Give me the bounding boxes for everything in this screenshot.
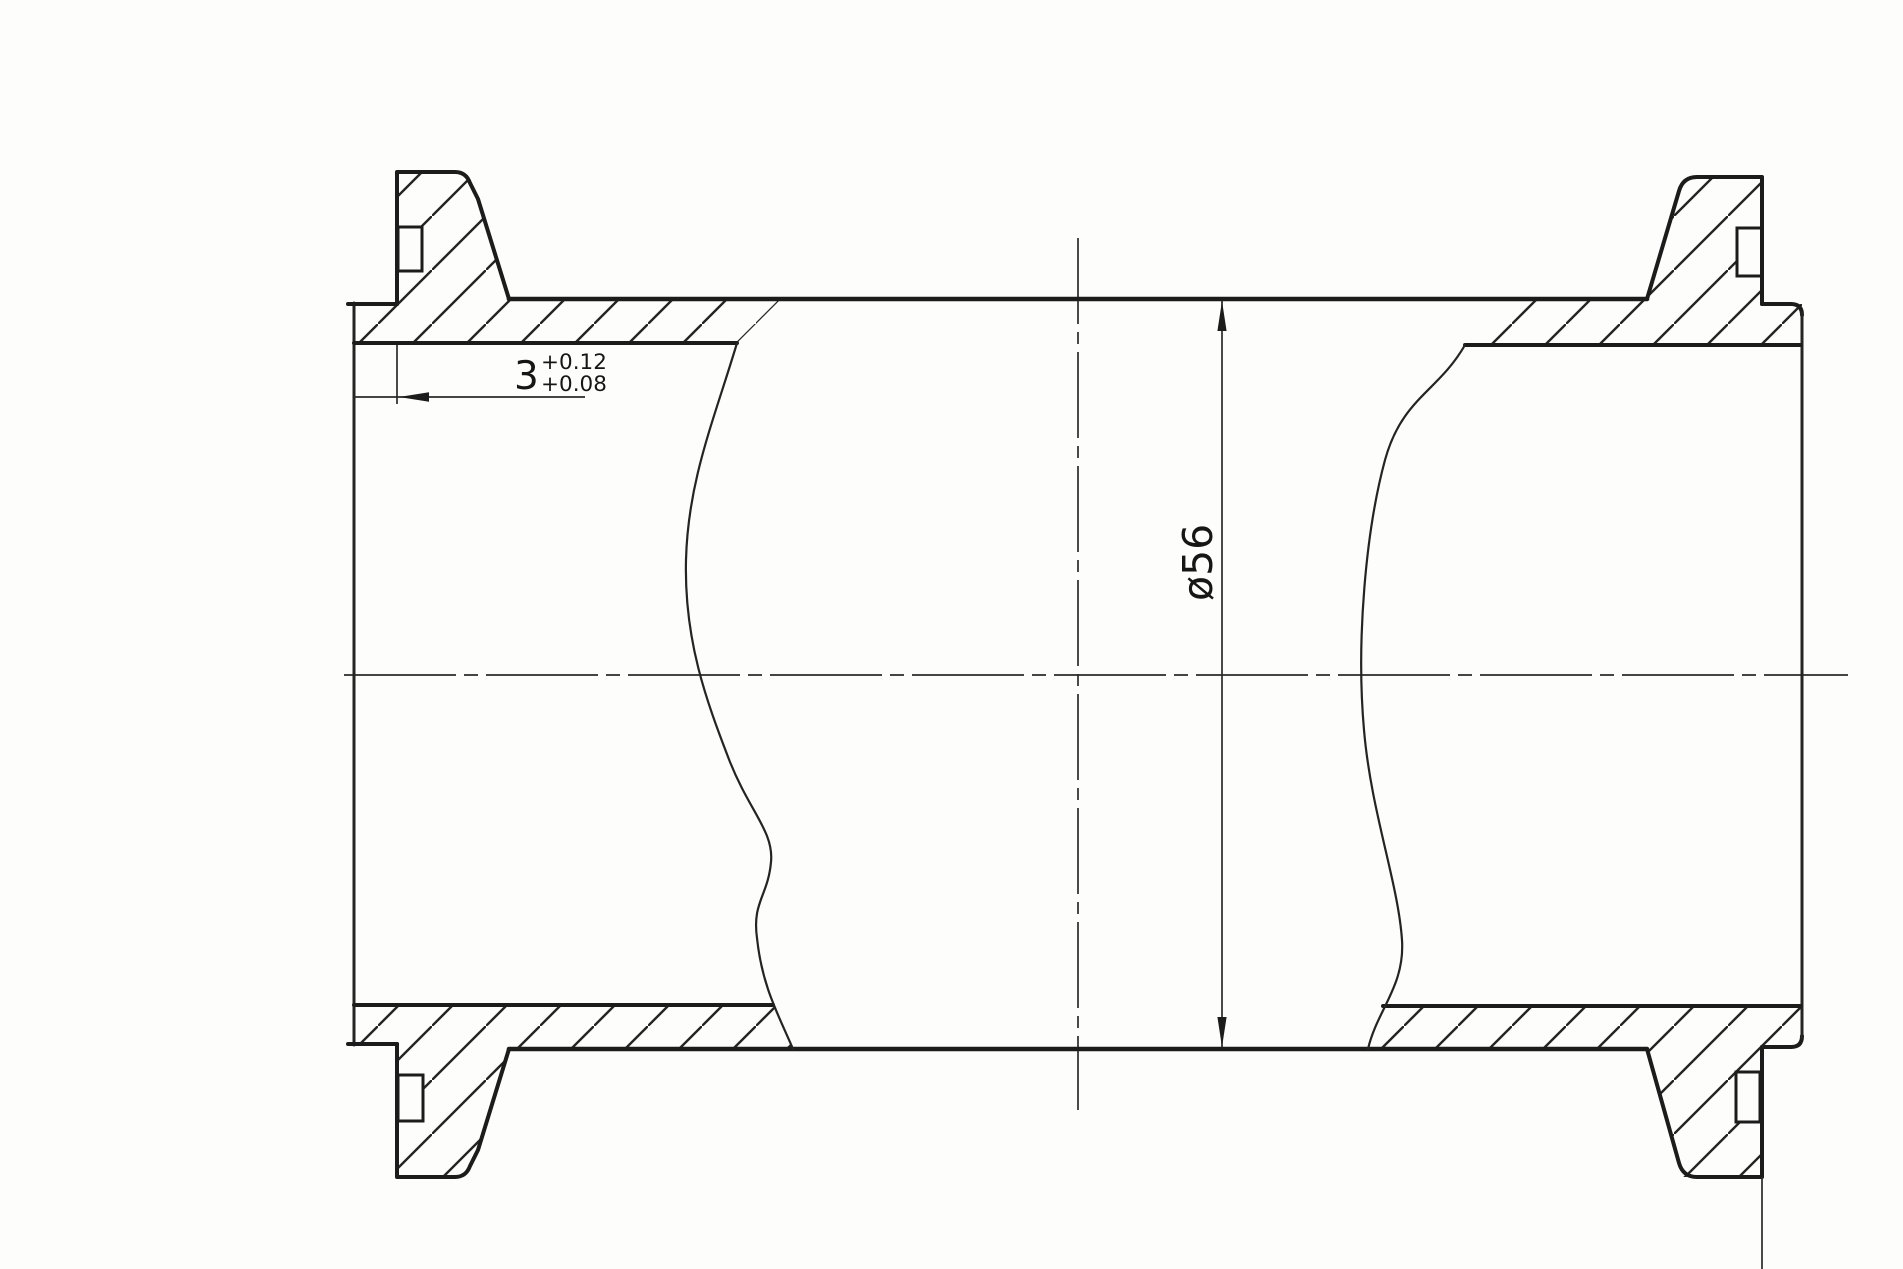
dim3-value: 3 <box>514 354 539 399</box>
gasket-groove-bottom-left <box>398 1075 423 1121</box>
paper-background <box>0 0 1903 1269</box>
engineering-drawing: 3 +0.12 +0.08 ø56 <box>0 0 1903 1269</box>
drawing-sheet: 3 +0.12 +0.08 ø56 <box>0 0 1903 1269</box>
gasket-groove-bottom-right <box>1736 1072 1760 1122</box>
gasket-groove-top-left <box>398 227 422 271</box>
gasket-groove-top-right <box>1737 228 1762 276</box>
dia-label: ø56 <box>1174 524 1222 601</box>
dim3-tolerance-lower: +0.08 <box>541 372 607 397</box>
